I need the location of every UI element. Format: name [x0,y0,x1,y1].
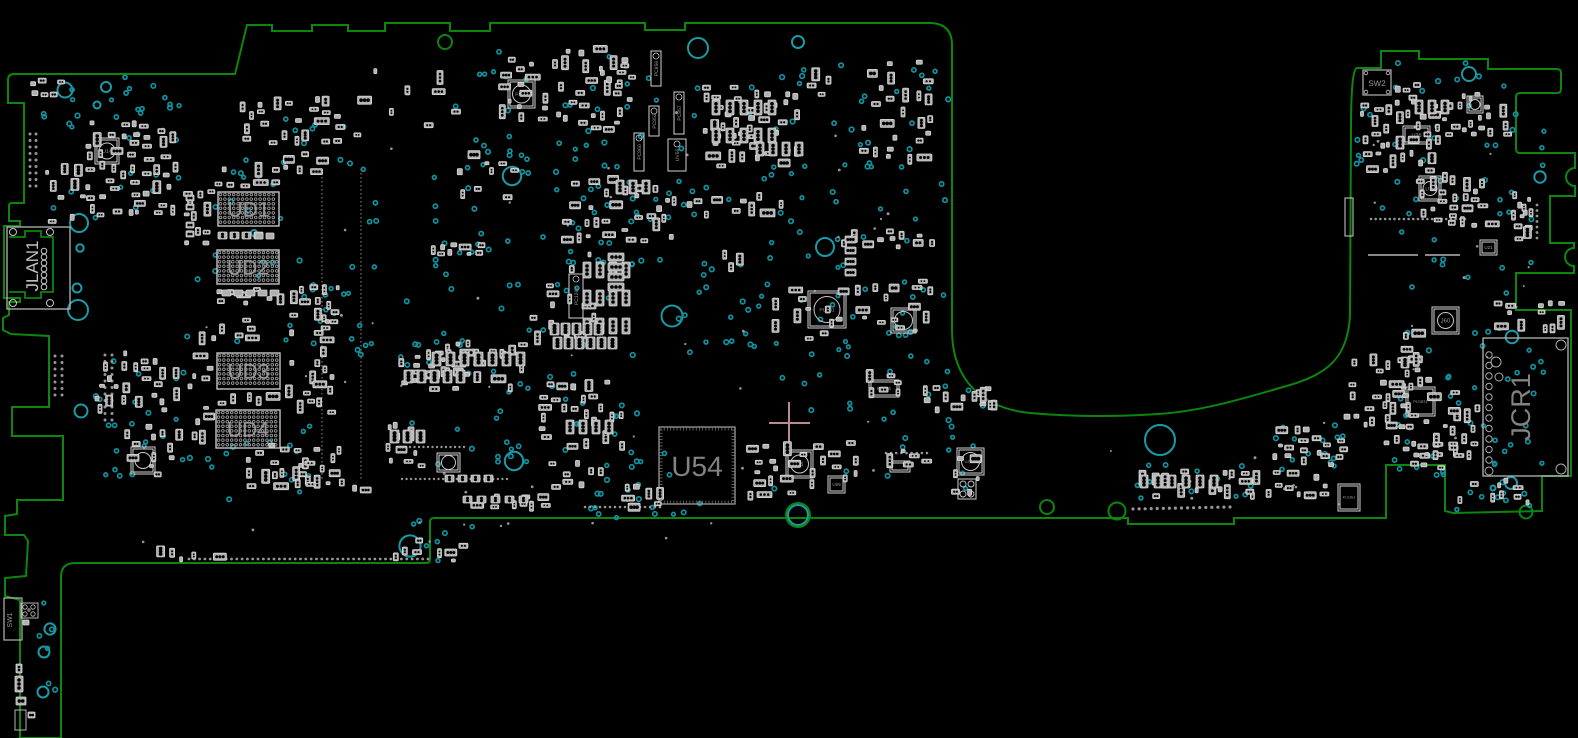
svg-text:SW2: SW2 [1368,79,1386,88]
svg-text:PC856: PC856 [654,61,660,77]
svg-text:UD3: UD3 [227,361,269,384]
svg-text:PC853: PC853 [652,113,658,129]
svg-text:PC857: PC857 [677,105,683,121]
svg-text:UD1: UD1 [227,199,269,222]
svg-text:JCR1: JCR1 [1506,373,1536,441]
svg-text:PU1951: PU1951 [1343,496,1356,500]
svg-text:U59: U59 [832,482,841,487]
svg-text:PU1931: PU1931 [1413,399,1428,404]
svg-text:U54: U54 [671,451,722,482]
svg-text:UD2: UD2 [227,257,269,280]
svg-text:PC1262: PC1262 [574,287,580,305]
svg-text:SW1: SW1 [7,612,14,627]
svg-text:U21: U21 [1484,245,1493,250]
svg-text:PC860: PC860 [637,144,643,160]
svg-text:U14: U14 [102,149,112,155]
svg-text:UD4: UD4 [227,419,269,442]
svg-text:JLAN1: JLAN1 [23,240,42,291]
svg-text:UV56: UV56 [675,149,681,162]
svg-text:J60: J60 [1441,318,1451,325]
